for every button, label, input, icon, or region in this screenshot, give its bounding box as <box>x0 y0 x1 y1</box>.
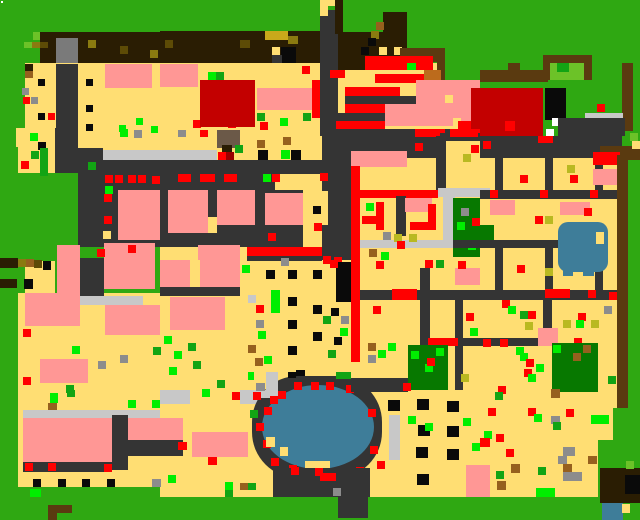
tile-red <box>471 145 479 153</box>
tile-red <box>403 383 411 391</box>
tile-stone <box>368 355 376 363</box>
tile-stone <box>604 306 612 314</box>
tile-brightgreen <box>378 350 386 358</box>
tile-red <box>428 204 436 230</box>
tile-stone <box>98 361 106 369</box>
tile-brightgreen <box>208 72 216 80</box>
tile-medgreen <box>225 490 233 497</box>
tile-charcoal <box>436 136 446 190</box>
tile-brightgreen <box>536 364 544 372</box>
tile-red <box>425 260 433 268</box>
tile-red <box>260 122 268 130</box>
tile-brown <box>563 464 572 472</box>
tile-charcoal <box>453 240 558 248</box>
tile-brightgreen <box>508 306 516 314</box>
tile-path <box>508 63 520 70</box>
tile-red <box>535 216 543 224</box>
tile-brown <box>376 22 384 30</box>
tile-stone <box>22 88 29 95</box>
tile-olive <box>461 374 469 382</box>
tile-brightgreen <box>50 393 58 403</box>
tile-red <box>496 434 504 442</box>
tile-brightgreen <box>105 186 113 194</box>
tile-brown <box>583 345 591 353</box>
tile-medgreen <box>323 316 331 324</box>
tile-olive <box>567 165 575 173</box>
tile-pink <box>25 293 80 326</box>
tile-brown <box>257 140 265 148</box>
tile-darkolive <box>240 40 250 48</box>
tile-lime <box>33 32 40 40</box>
tile-brown <box>573 353 581 361</box>
tile-red <box>247 247 322 256</box>
tile-stone <box>383 232 391 240</box>
tile-red <box>517 265 525 273</box>
tile-red <box>224 174 237 182</box>
tile-red <box>520 175 528 183</box>
tile-darkolive <box>40 42 48 48</box>
tile-yellow <box>320 6 328 16</box>
tile-brightgreen <box>120 129 128 137</box>
tile-red <box>410 222 428 230</box>
tile-grass <box>480 497 602 520</box>
tile-brightgreen <box>263 174 271 182</box>
tile-charcoal <box>351 378 408 392</box>
tile-darkbrown <box>0 279 17 288</box>
tile-lime <box>630 133 638 141</box>
tile-silver <box>360 240 455 248</box>
tile-brightgreen <box>553 345 561 353</box>
tile-black <box>313 305 322 314</box>
tile-silver <box>248 295 256 303</box>
tile-yellow <box>445 95 453 103</box>
tile-medgreen <box>257 113 265 121</box>
tile-black <box>417 399 429 410</box>
tile-stone <box>563 472 582 481</box>
tile-medgreen <box>248 483 256 490</box>
tile-brightgreen <box>591 415 609 424</box>
tile-olive <box>545 216 553 224</box>
tile-goldolive <box>150 50 158 58</box>
tile-crimson <box>471 88 480 133</box>
tile-red <box>376 261 384 269</box>
tile-red <box>48 463 56 471</box>
tile-water <box>583 264 594 276</box>
tile-brightgreen <box>381 252 389 260</box>
tile-black <box>416 447 428 458</box>
tile-brightgreen <box>436 348 444 356</box>
tile-brightgreen <box>388 343 396 351</box>
game-map[interactable] <box>0 0 640 520</box>
tile-medgreen <box>216 72 224 80</box>
tile-pink <box>192 432 248 457</box>
tile-red <box>450 129 478 137</box>
tile-black <box>38 113 45 120</box>
tile-stone <box>178 130 186 137</box>
tile-red <box>526 359 534 367</box>
tile-goldolive <box>88 40 96 48</box>
tile-medgreen <box>495 392 503 400</box>
tile-red <box>566 409 574 417</box>
tile-brightgreen <box>425 423 433 431</box>
tile-silver <box>80 296 143 305</box>
tile-medgreen <box>31 151 39 159</box>
tile-red <box>483 141 491 149</box>
tile-silver <box>160 390 190 404</box>
tile-darkbrown <box>25 64 33 71</box>
tile-brightgreen <box>151 126 158 133</box>
tile-goldolive <box>288 36 298 44</box>
tile-red <box>336 121 385 129</box>
tile-red <box>294 382 302 390</box>
tile-pink <box>265 193 303 225</box>
tile-black <box>331 308 339 316</box>
tile-pink <box>593 169 620 185</box>
tile-red <box>330 260 338 268</box>
tile-stone <box>134 130 142 138</box>
tile-pink <box>168 190 208 233</box>
tile-path <box>480 70 548 82</box>
tile-silver <box>266 372 278 398</box>
tile-yellow <box>320 191 328 225</box>
tile-pink <box>490 200 515 215</box>
tile-brightgreen <box>536 488 555 497</box>
tile-yellow <box>103 231 111 239</box>
tile-black <box>281 47 296 63</box>
tile-red <box>351 166 360 362</box>
tile-black <box>86 79 93 86</box>
tile-red <box>25 463 33 471</box>
tile-red <box>291 467 299 475</box>
tile-red <box>415 143 423 151</box>
tile-pink <box>455 268 480 285</box>
tile-black <box>258 150 268 160</box>
tile-red <box>200 130 208 137</box>
tile-red <box>128 245 136 253</box>
tile-brightgreen <box>280 118 288 126</box>
tile-red <box>362 216 376 224</box>
tile-pink <box>105 305 160 335</box>
tile-red <box>490 190 498 198</box>
tile-brightgreen <box>30 133 38 141</box>
tile-brown <box>551 389 560 398</box>
tile-red <box>253 392 261 400</box>
tile-red <box>23 329 31 337</box>
tile-red <box>370 446 378 454</box>
tile-brightgreen <box>258 331 266 339</box>
tile-medgreen <box>303 113 311 121</box>
tile-yellow <box>208 217 217 233</box>
tile-charcoal <box>80 258 104 297</box>
tile-silver <box>23 410 160 418</box>
tile-brightgreen <box>407 63 416 70</box>
tile-red <box>270 396 278 404</box>
tile-red <box>232 392 240 400</box>
tile-red <box>427 358 435 366</box>
tile-red <box>609 292 617 300</box>
tile-red <box>528 311 536 319</box>
tile-brightgreen <box>174 351 182 359</box>
tile-brightgreen <box>225 482 233 490</box>
tile-red <box>488 408 496 416</box>
tile-red <box>345 87 400 96</box>
tile-brown <box>511 464 520 473</box>
tile-brightgreen <box>411 351 419 359</box>
tile-red <box>271 458 279 466</box>
tile-black <box>388 400 400 411</box>
tile-silver <box>103 150 217 160</box>
tile-black <box>334 337 342 345</box>
tile-brightgreen <box>470 328 478 336</box>
tile-pink <box>200 260 240 287</box>
tile-charcoal <box>160 287 240 296</box>
tile-brightgreen <box>128 400 136 408</box>
tile-red <box>397 241 405 249</box>
tile-charcoal <box>56 64 78 132</box>
tile-stone <box>461 208 469 216</box>
tile-charcoal <box>495 248 503 290</box>
tile-darkolive <box>120 46 128 54</box>
tile-brightgreen <box>534 414 542 422</box>
tile-lime <box>24 42 32 48</box>
tile-red <box>178 174 191 182</box>
tile-path <box>584 63 592 80</box>
tile-stone <box>152 479 161 487</box>
tile-red <box>208 457 217 465</box>
tile-medgreen <box>153 347 161 355</box>
tile-charcoal <box>23 462 112 472</box>
tile-red <box>392 289 417 300</box>
tile-brightgreen <box>169 367 177 375</box>
tile-lime <box>626 461 634 469</box>
tile-brightgreen <box>264 356 272 364</box>
tile-red <box>105 175 113 183</box>
tile-olive <box>591 320 599 328</box>
tile-goldolive <box>18 259 26 267</box>
tile-medgreen <box>436 260 444 268</box>
tile-black <box>266 270 275 279</box>
tile-red <box>23 97 30 104</box>
tile-path <box>543 55 592 63</box>
tile-stone <box>333 488 341 496</box>
tile-medgreen <box>235 145 243 153</box>
tile-black <box>313 270 322 279</box>
tile-pink <box>351 151 407 167</box>
tile-gold <box>265 31 288 40</box>
tile-brightgreen <box>152 400 160 408</box>
tile-brightgreen <box>340 328 348 336</box>
tile-medgreen <box>557 63 569 72</box>
tile-pink <box>198 245 240 260</box>
tile-black <box>288 297 297 306</box>
tile-red <box>570 175 578 183</box>
tile-brightgreen <box>271 290 280 313</box>
tile-black <box>313 332 322 341</box>
tile-water <box>563 264 573 276</box>
tile-brightgreen <box>281 150 290 159</box>
tile-brightgreen <box>408 416 416 424</box>
tile-red <box>104 194 112 202</box>
tile-red <box>540 190 548 198</box>
tile-red <box>458 261 466 269</box>
tile-red <box>178 442 187 450</box>
tile-grass <box>0 147 18 173</box>
tile-yellow <box>379 47 387 55</box>
tile-olive <box>409 234 417 242</box>
tile-red <box>326 382 334 390</box>
tile-yellow <box>280 447 288 456</box>
tile-pink <box>217 190 255 225</box>
tile-stone <box>341 316 349 324</box>
tile-black <box>24 279 33 289</box>
tile-black <box>288 270 297 279</box>
tile-red <box>597 104 605 112</box>
tile-red <box>466 313 474 321</box>
tile-black <box>38 79 45 86</box>
tile-medgreen <box>40 148 48 176</box>
tile-medgreen <box>328 350 336 358</box>
tile-path <box>48 505 57 520</box>
tile-black <box>368 38 376 46</box>
tile-medgreen <box>553 422 561 430</box>
tile-darkolive <box>34 260 42 268</box>
tile-darkred <box>226 152 234 160</box>
tile-brown <box>368 343 376 351</box>
tile-stone <box>256 320 264 328</box>
tile-medgreen <box>538 467 546 475</box>
tile-brightgreen <box>242 265 250 273</box>
tile-red <box>272 174 280 182</box>
tile-red <box>302 66 310 74</box>
tile-brown <box>283 137 291 145</box>
tile-red <box>256 423 264 431</box>
tile-red <box>21 161 29 169</box>
tile-path <box>617 155 628 410</box>
tile-goldolive <box>32 42 40 48</box>
tile-brown <box>588 456 597 464</box>
tile-red <box>218 152 226 160</box>
tile-black <box>86 124 93 131</box>
tile-stone <box>31 97 38 104</box>
tile-brown <box>25 71 33 78</box>
tile-red <box>505 121 515 131</box>
tile-water <box>602 503 623 520</box>
tile-red <box>506 449 514 457</box>
tile-stone <box>558 456 567 464</box>
tile-stone <box>563 447 575 456</box>
tile-brightgreen <box>576 320 584 328</box>
tile-medgreen <box>88 162 96 170</box>
tile-path <box>543 63 550 80</box>
tile-black <box>625 475 640 494</box>
tile-black <box>447 401 459 412</box>
tile-brightgreen <box>33 489 41 497</box>
tile-medgreen <box>520 311 528 319</box>
tile-darkbrown <box>335 0 343 34</box>
tile-black <box>86 105 93 112</box>
tile-black <box>336 262 351 302</box>
tile-red <box>320 173 328 181</box>
tile-stone <box>256 383 265 391</box>
tile-brown <box>26 259 34 267</box>
tile-black <box>361 47 369 55</box>
tile-red <box>545 289 570 298</box>
game-map-screenshot <box>0 0 640 520</box>
tile-medgreen <box>67 390 75 397</box>
tile-charcoal <box>55 128 78 173</box>
tile-yellow <box>596 232 604 244</box>
tile-red <box>330 70 345 78</box>
tile-brightgreen <box>366 203 374 211</box>
tile-medgreen <box>608 376 616 384</box>
tile-red <box>48 113 55 120</box>
tile-red <box>480 438 490 447</box>
tile-red <box>472 218 480 226</box>
tile-red <box>152 176 160 184</box>
tile-grass <box>23 487 160 520</box>
tile-black <box>288 320 297 329</box>
tile-black <box>447 426 459 437</box>
tile-red <box>584 208 592 216</box>
tile-pink <box>105 64 152 88</box>
tile-white <box>1 1 3 3</box>
tile-red <box>268 233 276 241</box>
tile-red <box>23 377 31 385</box>
tile-brown <box>240 483 248 490</box>
tile-pink <box>40 359 88 383</box>
tile-charcoal <box>330 113 385 121</box>
tile-brightgreen <box>463 418 471 426</box>
tile-crimson <box>200 80 255 127</box>
tile-silver <box>389 415 400 460</box>
tile-brightgreen <box>168 475 176 483</box>
tile-red <box>368 409 376 417</box>
tile-red <box>590 190 598 198</box>
tile-brown <box>497 481 506 490</box>
tile-brown <box>369 249 377 257</box>
tile-medgreen <box>217 380 225 388</box>
tile-pink <box>160 260 190 287</box>
tile-pink <box>57 245 80 297</box>
tile-pink <box>160 64 198 87</box>
tile-medgreen <box>193 361 201 369</box>
tile-brightgreen <box>72 346 80 354</box>
tile-red <box>200 174 215 182</box>
tile-black <box>447 449 459 460</box>
tile-red <box>588 290 596 298</box>
tile-brightgreen <box>164 336 172 344</box>
tile-charcoal <box>128 440 183 456</box>
tile-olive <box>463 154 471 162</box>
tile-red <box>264 407 272 415</box>
tile-darkolive <box>165 40 173 48</box>
tile-black <box>288 372 296 378</box>
tile-brightgreen <box>528 374 536 382</box>
tile-yellow <box>622 504 630 513</box>
tile-brown <box>255 358 263 366</box>
tile-stone <box>120 355 128 363</box>
tile-stone <box>281 258 289 266</box>
tile-medgreen <box>188 343 196 351</box>
tile-brightgreen <box>136 118 143 125</box>
tile-red <box>128 175 136 183</box>
tile-red <box>115 175 123 183</box>
tile-black <box>291 150 301 160</box>
tile-brightgreen <box>202 389 210 397</box>
tile-red <box>256 305 264 313</box>
tile-medgreen <box>250 410 258 418</box>
tile-grass <box>0 173 55 261</box>
